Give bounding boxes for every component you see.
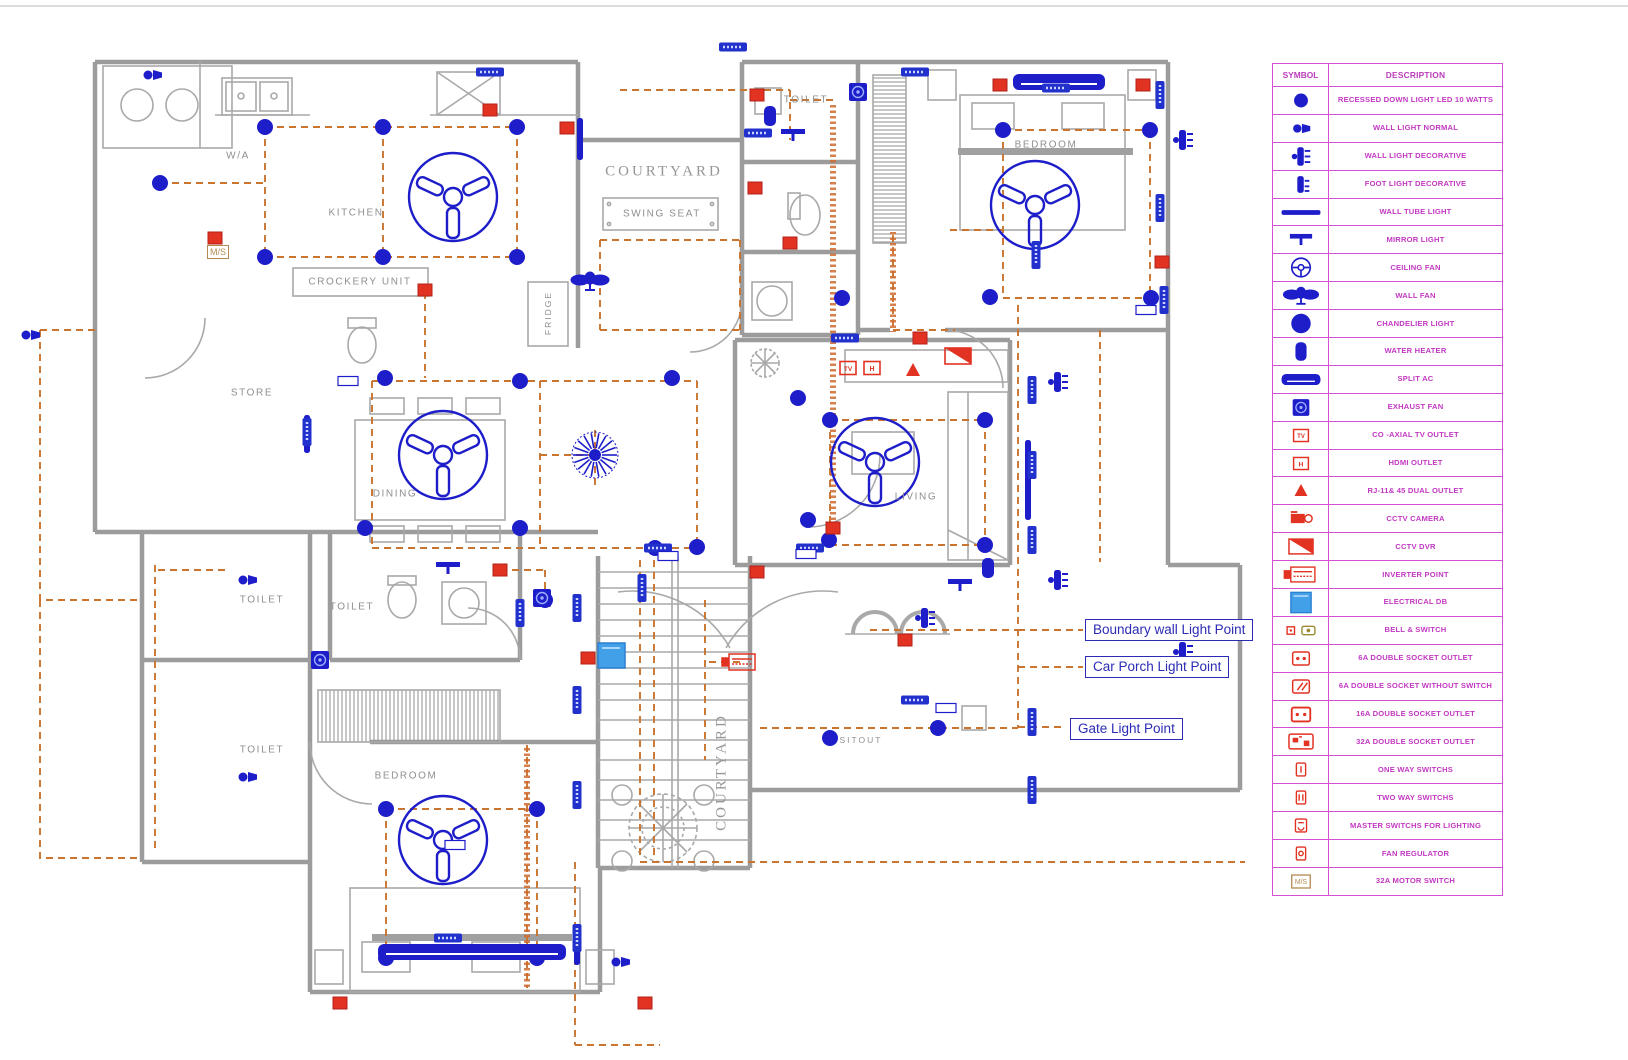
svg-text:H: H <box>869 366 874 373</box>
switch-tag <box>1156 194 1165 222</box>
recessed-light-symbol <box>982 289 998 305</box>
legend-row: TVCO -AXIAL TV OUTLET <box>1273 422 1502 450</box>
legend-row: 16A DOUBLE SOCKET OUTLET <box>1273 701 1502 729</box>
two-way-switch-icon <box>1273 784 1329 811</box>
cctv-dvr-symbol <box>945 348 971 364</box>
wall-tube-light-icon <box>1273 199 1329 226</box>
walls <box>95 62 1240 992</box>
legend-description: INVERTER POINT <box>1329 561 1502 588</box>
legend-row: CHANDELIER LIGHT <box>1273 310 1502 338</box>
socket-outlet-symbol <box>638 997 652 1009</box>
recessed-light-symbol <box>378 801 394 817</box>
recessed-light-symbol <box>512 373 528 389</box>
legend-table: SYMBOL DESCRIPTION RECESSED DOWN LIGHT L… <box>1272 63 1503 896</box>
tv-outlet-symbol: TV <box>840 362 856 375</box>
legend-description: 6A DOUBLE SOCKET WITHOUT SWITCH <box>1329 673 1502 700</box>
legend-description: FAN REGULATOR <box>1329 840 1502 867</box>
wall-light-decorative-symbol <box>1174 131 1193 149</box>
socket-outlet-symbol <box>783 237 797 249</box>
switch-tag <box>1028 776 1037 804</box>
socket-outlet-symbol <box>750 89 764 101</box>
socket-outlet-symbol <box>750 566 764 578</box>
legend-row: CCTV DVR <box>1273 533 1502 561</box>
switch-tag <box>573 594 582 622</box>
legend-description: CO -AXIAL TV OUTLET <box>1329 422 1502 449</box>
circuit-tag <box>338 377 358 386</box>
socket-outlet-symbol <box>993 79 1007 91</box>
legend-description: WALL FAN <box>1329 282 1502 309</box>
recessed-light-symbol <box>977 537 993 553</box>
exhaust-fan-symbol <box>533 589 551 607</box>
exhaust-fan-symbol <box>311 651 329 669</box>
recessed-light-symbol <box>664 370 680 386</box>
legend-description: WATER HEATER <box>1329 338 1502 365</box>
socket-outlet-symbol <box>913 332 927 344</box>
ceiling-fan-symbol <box>399 796 487 884</box>
switch-tag <box>719 43 747 52</box>
motor-switch-icon: M/S <box>1273 868 1329 895</box>
ceiling-fan-symbol <box>399 411 487 499</box>
switch-tag <box>1028 708 1037 736</box>
recessed-light-symbol <box>1143 290 1159 306</box>
legend-description: 32A DOUBLE SOCKET OUTLET <box>1329 728 1502 755</box>
one-way-switch-icon <box>1273 756 1329 783</box>
legend-row: EXHAUST FAN <box>1273 394 1502 422</box>
legend-description: RECESSED DOWN LIGHT LED 10 WATTS <box>1329 87 1502 114</box>
recessed-light-symbol <box>257 119 273 135</box>
recessed-light-symbol <box>509 249 525 265</box>
legend-description: CEILING FAN <box>1329 254 1502 281</box>
legend-row: SPLIT AC <box>1273 366 1502 394</box>
socket-outlet-symbol <box>1155 256 1169 268</box>
legend-description: WALL TUBE LIGHT <box>1329 199 1502 226</box>
split-ac-icon <box>1273 366 1329 393</box>
legend-description: MASTER SWITCHS FOR LIGHTING <box>1329 812 1502 839</box>
legend-description: CCTV DVR <box>1329 533 1502 560</box>
recessed-light-symbol <box>822 730 838 746</box>
legend-description: TWO WAY SWITCHS <box>1329 784 1502 811</box>
legend-header-description: DESCRIPTION <box>1329 64 1502 86</box>
exhaust-fan-symbol <box>849 83 867 101</box>
recessed-light-symbol <box>375 119 391 135</box>
fan-regulator-icon <box>1273 840 1329 867</box>
recessed-light-symbol <box>375 249 391 265</box>
switch-tag <box>573 781 582 809</box>
legend-description: ELECTRICAL DB <box>1329 589 1502 616</box>
mirror-light-symbol <box>436 562 460 574</box>
switch-tag <box>303 418 312 446</box>
legend-row: CEILING FAN <box>1273 254 1502 282</box>
legend-description: WALL LIGHT NORMAL <box>1329 115 1502 142</box>
legend-row: ONE WAY SWITCHS <box>1273 756 1502 784</box>
ceiling-fan-symbol <box>409 153 497 241</box>
mirror-light-symbol <box>948 579 972 591</box>
legend-description: BELL & SWITCH <box>1329 617 1502 644</box>
wall-light-decorative-symbol <box>1049 373 1068 391</box>
conduit-columns <box>527 105 893 988</box>
legend-row: 32A DOUBLE SOCKET OUTLET <box>1273 728 1502 756</box>
legend-row: TWO WAY SWITCHS <box>1273 784 1502 812</box>
socket-32a-icon <box>1273 728 1329 755</box>
socket-outlet-symbol <box>493 564 507 576</box>
socket-outlet-symbol <box>826 522 840 534</box>
recessed-light-symbol <box>512 520 528 536</box>
socket-outlet-symbol <box>748 182 762 194</box>
recessed-light-symbol <box>1142 122 1158 138</box>
legend-header: SYMBOL DESCRIPTION <box>1273 64 1502 87</box>
switch-tag <box>573 686 582 714</box>
legend-row: WALL LIGHT DECORATIVE <box>1273 143 1502 171</box>
switch-tag <box>476 68 504 77</box>
legend-row: WALL TUBE LIGHT <box>1273 199 1502 227</box>
switch-tag <box>573 924 582 952</box>
legend-description: RJ-11& 45 DUAL OUTLET <box>1329 477 1502 504</box>
legend-description: EXHAUST FAN <box>1329 394 1502 421</box>
legend-row: 6A DOUBLE SOCKET WITHOUT SWITCH <box>1273 673 1502 701</box>
legend-row: RJ-11& 45 DUAL OUTLET <box>1273 477 1502 505</box>
rj-outlet-icon <box>1273 477 1329 504</box>
recessed-light-symbol <box>257 249 273 265</box>
legend-row: MASTER SWITCHS FOR LIGHTING <box>1273 812 1502 840</box>
recessed-light-symbol <box>800 512 816 528</box>
ceiling-fan-icon <box>1273 254 1329 281</box>
wall-light-symbol <box>144 70 163 80</box>
legend-description: 32A MOTOR SWITCH <box>1329 868 1502 895</box>
circuit-tag <box>445 841 465 850</box>
legend-description: CHANDELIER LIGHT <box>1329 310 1502 337</box>
legend-row: WATER HEATER <box>1273 338 1502 366</box>
circuit-tag <box>936 704 956 713</box>
legend-description: HDMI OUTLET <box>1329 450 1502 477</box>
recessed-light-symbol <box>152 175 168 191</box>
svg-text:H: H <box>1298 461 1303 468</box>
recessed-light-symbol <box>977 412 993 428</box>
legend-row: INVERTER POINT <box>1273 561 1502 589</box>
svg-text:TV: TV <box>844 366 853 373</box>
switch-tag <box>744 129 772 138</box>
recessed-light-symbol <box>822 412 838 428</box>
switch-tag <box>434 934 462 943</box>
inverter-point-icon <box>1273 561 1329 588</box>
socket-outlet-symbol <box>333 997 347 1009</box>
wall-light-symbol <box>239 772 258 782</box>
electrical-db-symbol <box>598 643 625 668</box>
legend-description: ONE WAY SWITCHS <box>1329 756 1502 783</box>
mirror-light-icon <box>1273 226 1329 253</box>
recessed-light-symbol <box>509 119 525 135</box>
recessed-light-symbol <box>790 390 806 406</box>
wall-tube-light-symbol <box>577 118 583 160</box>
switch-tag <box>1028 451 1037 479</box>
socket-6a-icon <box>1273 645 1329 672</box>
legend-row: 6A DOUBLE SOCKET OUTLET <box>1273 645 1502 673</box>
recessed-down-light-icon <box>1273 87 1329 114</box>
legend-description: SPLIT AC <box>1329 366 1502 393</box>
socket-outlet-symbol <box>560 122 574 134</box>
switch-tag <box>1160 286 1169 314</box>
recessed-light-symbol <box>930 720 946 736</box>
wall-fan-icon <box>1273 282 1329 309</box>
legend-row: MIRROR LIGHT <box>1273 226 1502 254</box>
water-heater-symbol <box>982 558 994 578</box>
switch-tag <box>901 68 929 77</box>
switch-tag <box>1032 241 1041 269</box>
socket-16a-icon <box>1273 701 1329 728</box>
exhaust-fan-icon <box>1273 394 1329 421</box>
wall-light-symbol <box>612 957 631 967</box>
svg-text:TV: TV <box>1297 434 1305 440</box>
legend-row: RECESSED DOWN LIGHT LED 10 WATTS <box>1273 87 1502 115</box>
ceiling-fan-symbol <box>991 161 1079 249</box>
switch-tag <box>638 574 647 602</box>
water-heater-icon <box>1273 338 1329 365</box>
switch-tag <box>1028 376 1037 404</box>
wall-light-decorative-icon <box>1273 143 1329 170</box>
rj-outlet-symbol <box>906 363 920 376</box>
wall-light-normal-icon <box>1273 115 1329 142</box>
recessed-light-symbol <box>995 122 1011 138</box>
socket-outlet-symbol <box>898 634 912 646</box>
master-switch-icon <box>1273 812 1329 839</box>
switch-tag <box>901 696 929 705</box>
switch-tag <box>831 334 859 343</box>
recessed-light-symbol <box>689 539 705 555</box>
socket-outlet-symbol <box>208 232 222 244</box>
recessed-light-symbol <box>529 801 545 817</box>
electrical-db-icon <box>1273 589 1329 616</box>
wall-light-symbol <box>239 575 258 585</box>
furniture <box>103 62 1156 992</box>
legend-row: FAN REGULATOR <box>1273 840 1502 868</box>
wall-light-symbol <box>22 330 41 340</box>
socket-outlet-symbol <box>483 104 497 116</box>
tv-outlet-icon: TV <box>1273 422 1329 449</box>
switch-tag <box>1042 84 1070 93</box>
hdmi-outlet-icon: H <box>1273 450 1329 477</box>
bell-switch-icon <box>1273 617 1329 644</box>
circuit-tag <box>796 550 816 559</box>
legend-row: HHDMI OUTLET <box>1273 450 1502 478</box>
switch-tag <box>1028 526 1037 554</box>
legend-row: WALL LIGHT NORMAL <box>1273 115 1502 143</box>
legend-header-symbol: SYMBOL <box>1273 64 1329 86</box>
wall-light-decorative-symbol <box>1174 643 1193 661</box>
split-ac-symbol <box>378 944 566 960</box>
recessed-light-symbol <box>377 370 393 386</box>
legend-row: BELL & SWITCH <box>1273 617 1502 645</box>
drawing-canvas: TVH W/AKITCHENCROCKERY UNITSTOREDININGCO… <box>0 0 1628 1060</box>
chandelier-light-icon <box>1273 310 1329 337</box>
legend-description: MIRROR LIGHT <box>1329 226 1502 253</box>
legend-row: FOOT LIGHT DECORATIVE <box>1273 171 1502 199</box>
socket-outlet-symbol <box>581 652 595 664</box>
foot-light-decorative-icon <box>1273 171 1329 198</box>
socket-outlet-symbol <box>1136 79 1150 91</box>
hdmi-outlet-symbol: H <box>864 362 880 375</box>
svg-text:M/S: M/S <box>1294 879 1307 886</box>
socket-outlet-symbol <box>418 284 432 296</box>
mirror-light-symbol <box>781 129 805 141</box>
wall-light-decorative-symbol <box>1049 571 1068 589</box>
legend-description: WALL LIGHT DECORATIVE <box>1329 143 1502 170</box>
legend-row: ELECTRICAL DB <box>1273 589 1502 617</box>
circuit-tag <box>658 552 678 561</box>
recessed-light-symbol <box>357 520 373 536</box>
recessed-light-symbol <box>834 290 850 306</box>
socket-6a-ns-icon <box>1273 673 1329 700</box>
circuit-tag <box>1136 306 1156 315</box>
legend-description: 16A DOUBLE SOCKET OUTLET <box>1329 701 1502 728</box>
switch-tag <box>516 599 525 627</box>
legend-row: WALL FAN <box>1273 282 1502 310</box>
legend-row: CCTV CAMERA <box>1273 505 1502 533</box>
water-heater-symbol <box>764 106 776 126</box>
cctv-camera-icon <box>1273 505 1329 532</box>
legend-description: 6A DOUBLE SOCKET OUTLET <box>1329 645 1502 672</box>
legend-row: M/S32A MOTOR SWITCH <box>1273 868 1502 895</box>
legend-description: CCTV CAMERA <box>1329 505 1502 532</box>
legend-description: FOOT LIGHT DECORATIVE <box>1329 171 1502 198</box>
cctv-dvr-icon <box>1273 533 1329 560</box>
switch-tag <box>1156 81 1165 109</box>
